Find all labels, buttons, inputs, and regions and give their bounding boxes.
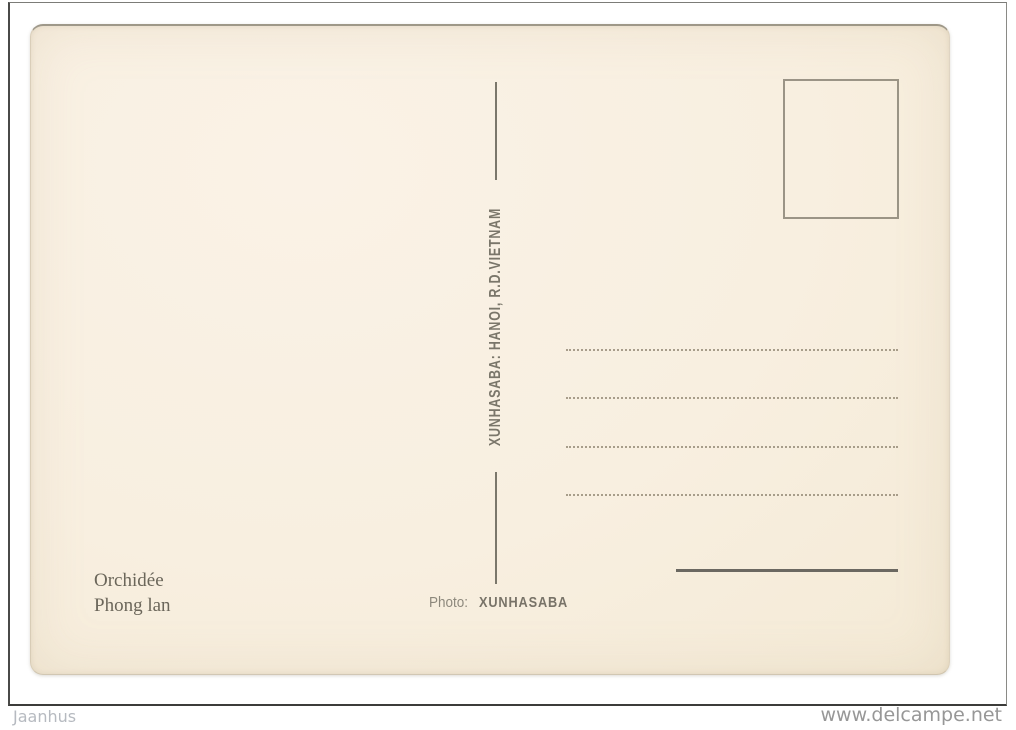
address-line — [566, 349, 898, 351]
postcard-listing-image: XUNHASABA: HANOI, R.D.VIETNAM Orchidée P… — [0, 0, 1016, 730]
postcard-back: XUNHASABA: HANOI, R.D.VIETNAM Orchidée P… — [30, 24, 950, 675]
divider-line-top — [495, 82, 497, 180]
stamp-box — [783, 79, 899, 219]
photo-credit-name: XUNHASABA — [479, 594, 568, 611]
caption-french: Orchidée — [94, 568, 171, 593]
caption-block: Orchidée Phong lan — [94, 568, 171, 618]
watermark-site: www.delcampe.net — [820, 704, 1002, 726]
address-line — [566, 494, 898, 496]
caption-vietnamese: Phong lan — [94, 593, 171, 618]
signature-line — [676, 569, 898, 572]
photo-credit-label: Photo: — [429, 594, 468, 611]
photo-credit: Photo: XUNHASABA — [429, 594, 583, 611]
address-line — [566, 446, 898, 448]
publisher-vertical-text: XUNHASABA: HANOI, R.D.VIETNAM — [487, 208, 505, 446]
divider-line-bottom — [495, 472, 497, 584]
watermark-seller: Jaanhus — [13, 707, 76, 726]
address-line — [566, 397, 898, 399]
